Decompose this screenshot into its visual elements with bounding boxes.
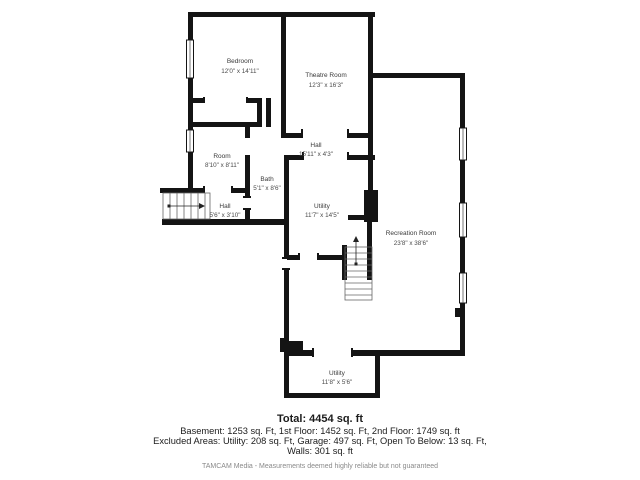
upper-hall-label: Hall [310,142,322,149]
bottom-utility-label: Utility [329,370,346,377]
lower-hall-dims: 5'6" x 3'10" [209,212,240,219]
theatre-room-label: Theatre Room [305,72,347,79]
disclaimer-text: TAMCAM Media - Measurements deemed highl… [0,463,640,470]
area-summary: Total: 4454 sq. ft Basement: 1253 sq. Ft… [0,413,640,470]
bath-label: Bath [260,176,274,183]
windows [187,40,467,303]
bottom-utility-dims: 11'8" x 5'6" [322,379,353,386]
lower-hall-label: Hall [219,203,231,210]
recreation-room-dims: 23'8" x 38'6" [394,240,429,247]
stairs-center-direction-arrow [353,236,359,266]
recreation-room-label: Recreation Room [386,230,437,237]
stairs-left-direction-arrow [168,203,206,209]
bedroom-dims: 12'0" x 14'11" [221,68,259,75]
room-dims: 8'10" x 8'11" [205,162,239,169]
bath-dims: 5'1" x 8'6" [253,185,281,192]
room-label: Room [213,153,230,160]
door-ticks [203,97,353,357]
walls [160,12,465,398]
bedroom-label: Bedroom [227,58,253,65]
total-area-text: Total: 4454 sq. ft [0,413,640,425]
utility-dims: 11'7" x 14'5" [305,212,339,219]
walls-area-text: Walls: 301 sq. ft [0,447,640,457]
floor-plan-drawing: Bedroom 12'0" x 14'11" Theatre Room 12'3… [0,0,640,410]
stairs-left [163,193,210,219]
floor-plan-page: Bedroom 12'0" x 14'11" Theatre Room 12'3… [0,0,640,480]
upper-hall-dims: 15'11" x 4'3" [299,151,333,158]
utility-label: Utility [314,203,331,210]
theatre-room-dims: 12'3" x 16'3" [309,82,344,89]
